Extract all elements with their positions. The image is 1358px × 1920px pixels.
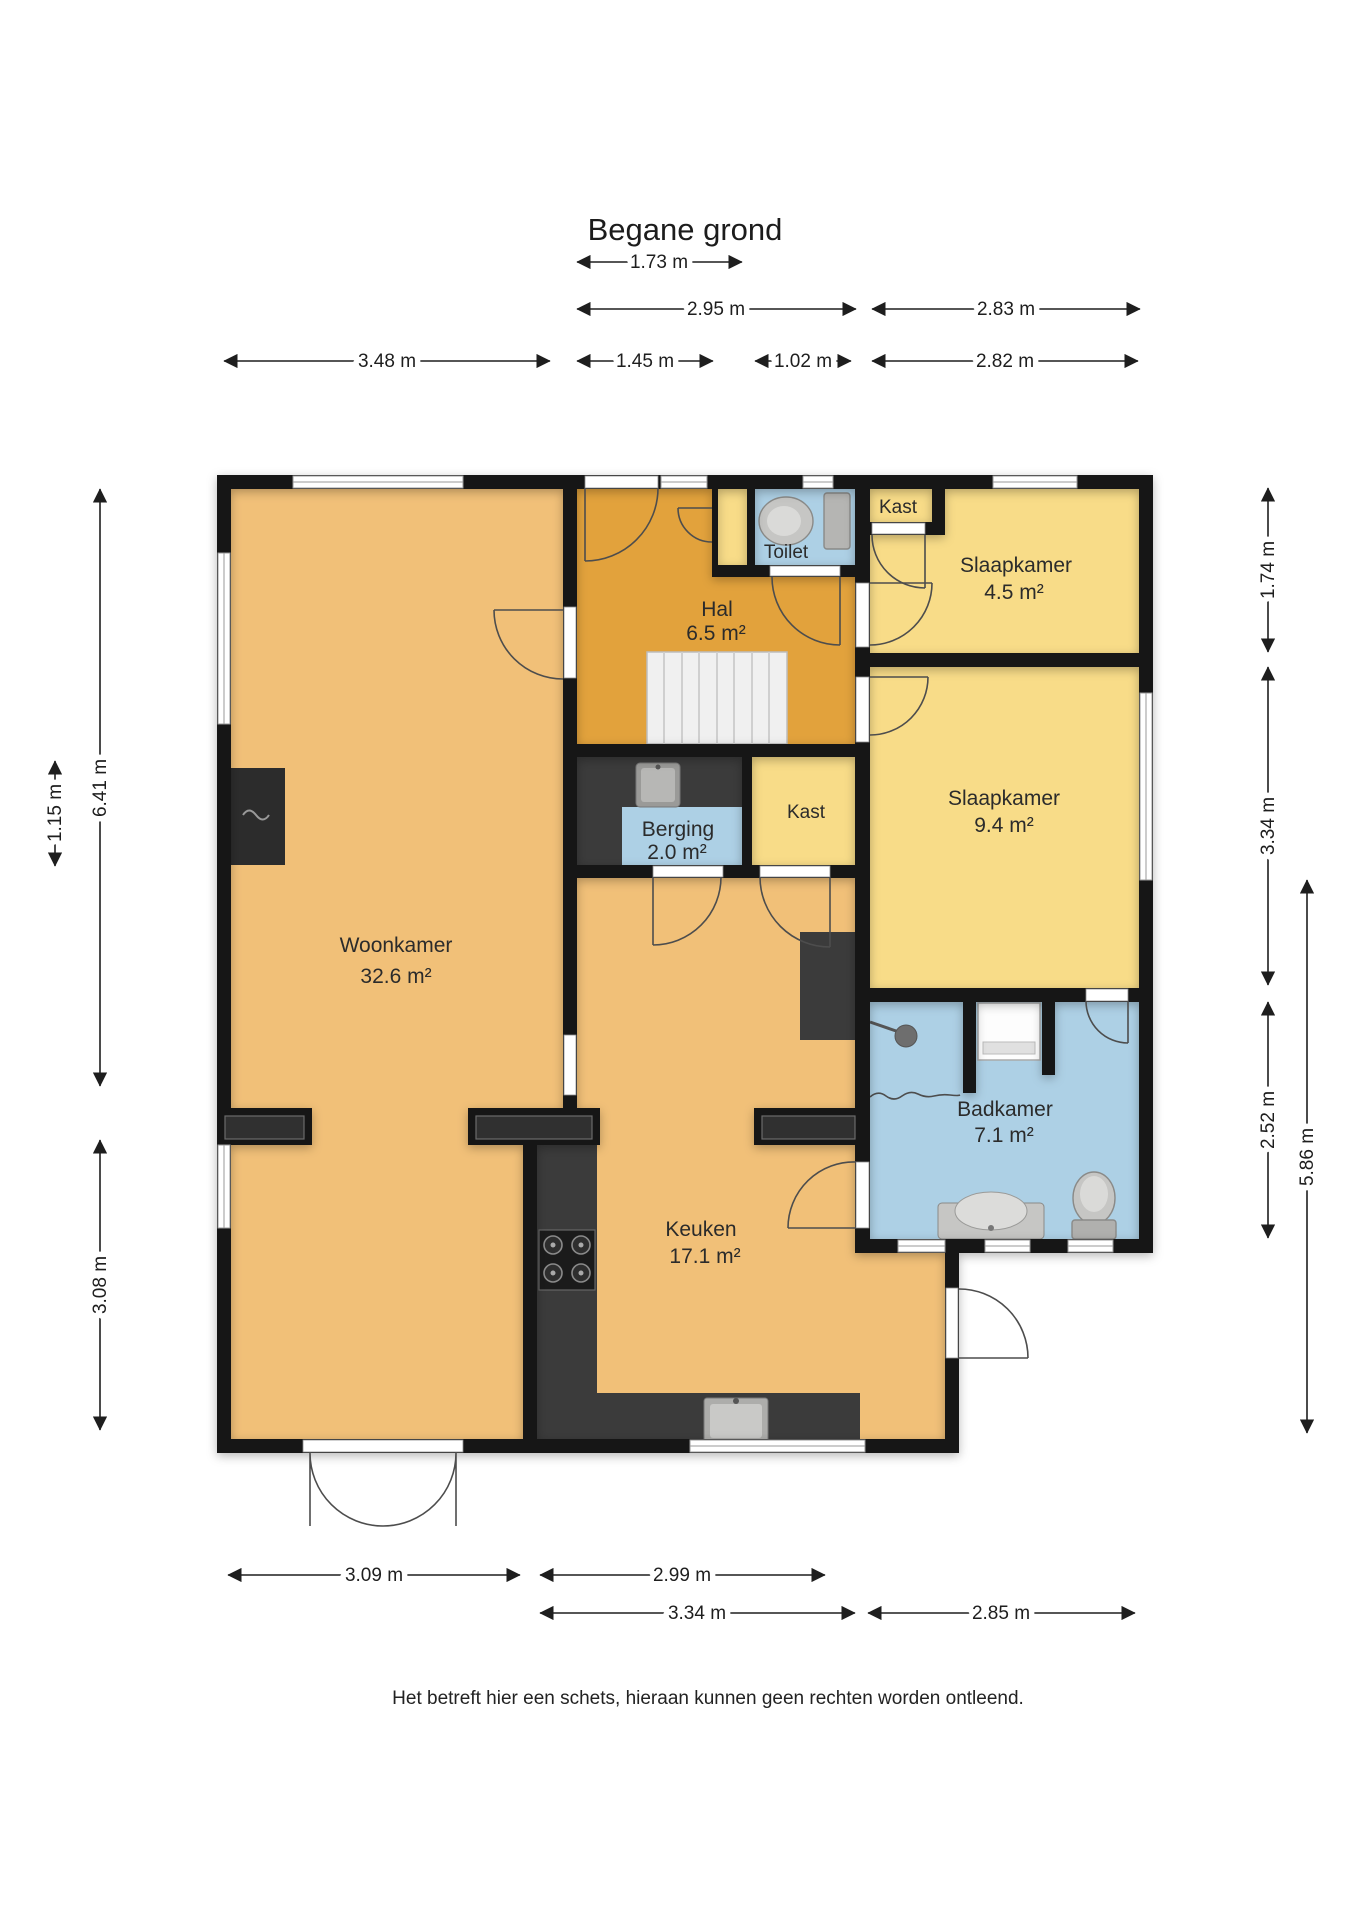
door-slaapkamer-klein	[856, 583, 869, 647]
dim-top-3: 2.83 m	[977, 299, 1035, 320]
door-kast-boven	[872, 523, 925, 534]
door-slaapkamer-groot	[856, 677, 869, 742]
dim-top-5: 1.45 m	[616, 351, 674, 372]
stairs	[647, 652, 787, 744]
window-slaapkamer-right	[1140, 693, 1152, 880]
stove-icon	[539, 1230, 595, 1290]
dim-top-4: 3.48 m	[358, 351, 416, 372]
dim-top-2: 2.95 m	[687, 299, 745, 320]
dim-top-7: 2.82 m	[976, 351, 1034, 372]
dimensions-left: 1.15 m 6.41 m 3.08 m	[45, 489, 111, 1430]
window-badkamer-1	[898, 1240, 945, 1252]
dim-bottom-4: 2.85 m	[972, 1603, 1030, 1624]
room-label-kast-midden: Kast	[787, 802, 826, 823]
dim-top-1: 1.73 m	[630, 252, 688, 273]
window-keuken-bottom	[690, 1440, 865, 1452]
door-front	[585, 476, 658, 488]
door-berging	[653, 866, 723, 877]
room-label-toilet: Toilet	[764, 542, 809, 563]
window-badkamer-3	[1068, 1240, 1113, 1252]
dim-left-3: 3.08 m	[90, 1256, 111, 1314]
dim-right-2: 3.34 m	[1258, 797, 1279, 855]
room-label-keuken: Keuken	[665, 1218, 736, 1241]
wardrobe-cabinet	[800, 932, 856, 1040]
window-badkamer-2	[985, 1240, 1030, 1252]
disclaimer-text: Het betreft hier een schets, hieraan kun…	[392, 1688, 1024, 1709]
window-hal-top	[661, 476, 707, 488]
room-label-kast-boven: Kast	[879, 497, 918, 518]
dim-bottom-2: 2.99 m	[653, 1565, 711, 1586]
room-area-badkamer: 7.1 m²	[974, 1124, 1034, 1147]
berging-counter-side	[573, 807, 622, 867]
room-label-hal: Hal	[701, 598, 733, 621]
kitchen-sink-icon	[704, 1398, 768, 1444]
door-toilet	[770, 566, 840, 576]
window-woonkamer-left-lower	[218, 1145, 230, 1228]
room-woonkamer	[231, 489, 563, 1439]
room-area-slaapkamer-klein: 4.5 m²	[984, 581, 1044, 604]
dimensions-bottom: 3.09 m 2.99 m 3.34 m 2.85 m	[228, 1565, 1135, 1624]
dim-right-4: 5.86 m	[1297, 1128, 1318, 1186]
washing-machine	[978, 1003, 1040, 1060]
room-label-badkamer: Badkamer	[957, 1098, 1053, 1121]
floorplan-page: Begane grond	[0, 0, 1358, 1920]
dimensions-right: 1.74 m 3.34 m 2.52 m 5.86 m	[1258, 488, 1318, 1433]
room-area-keuken: 17.1 m²	[669, 1245, 740, 1268]
floorplan-canvas: Begane grond	[0, 0, 1358, 1920]
dim-left-1: 1.15 m	[45, 784, 66, 842]
room-area-woonkamer: 32.6 m²	[360, 965, 431, 988]
dim-right-3: 2.52 m	[1258, 1091, 1279, 1149]
dimensions-top: 1.73 m 2.95 m 2.83 m 3.48 m 1.45 m 1.02 …	[224, 252, 1140, 372]
dim-top-6: 1.02 m	[774, 351, 832, 372]
dim-bottom-3: 3.34 m	[668, 1603, 726, 1624]
door-badkamer	[1086, 989, 1128, 1001]
room-area-hal: 6.5 m²	[686, 622, 746, 645]
door-openslaand	[303, 1440, 463, 1452]
dim-bottom-1: 3.09 m	[345, 1565, 403, 1586]
window-toilet-top	[803, 476, 833, 488]
door-keuken-achter	[946, 1288, 958, 1358]
door-woonkamer	[564, 607, 576, 678]
door-keuken-badkamer	[856, 1162, 869, 1228]
page-title: Begane grond	[588, 212, 783, 247]
window-woonkamer-left-upper	[218, 553, 230, 724]
niche-kast	[718, 489, 747, 565]
dim-right-1: 1.74 m	[1258, 541, 1279, 599]
room-label-slaapkamer-groot: Slaapkamer	[948, 787, 1060, 810]
opening-woonkamer-keuken	[564, 1035, 576, 1095]
window-slaapkamer-top	[993, 476, 1077, 488]
window-woonkamer-top	[293, 476, 463, 488]
room-area-berging: 2.0 m²	[647, 841, 707, 864]
kitchen-counter-bottom	[537, 1393, 860, 1440]
berging-sink-icon	[636, 763, 680, 807]
room-label-berging: Berging	[642, 818, 714, 841]
room-label-slaapkamer-klein: Slaapkamer	[960, 554, 1072, 577]
room-label-woonkamer: Woonkamer	[340, 934, 453, 957]
toilet-fixture-badkamer	[1072, 1172, 1116, 1239]
room-area-slaapkamer-groot: 9.4 m²	[974, 814, 1034, 837]
door-kast-midden	[760, 866, 830, 877]
dim-left-2: 6.41 m	[90, 759, 111, 817]
